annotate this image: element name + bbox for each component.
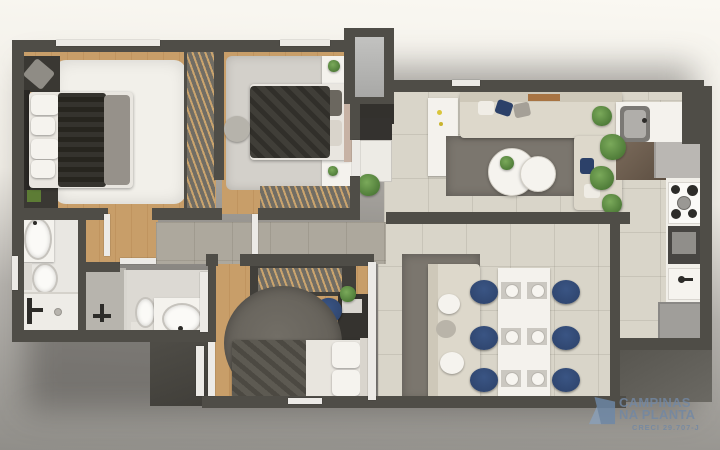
cooktop-burner	[688, 209, 697, 218]
wall-left	[12, 40, 24, 340]
master-throw-blanket	[104, 95, 130, 185]
watermark-line2: NA PLANTA	[619, 409, 700, 421]
master-closet-hangers	[184, 48, 215, 210]
dining-chair	[470, 280, 498, 304]
shower-drain	[54, 308, 62, 316]
faucet-arm	[684, 278, 693, 281]
door-leaf-master	[104, 214, 110, 256]
shower-fixture	[100, 304, 104, 322]
wall-top-living	[388, 80, 704, 92]
bedroom2-duvet	[250, 86, 330, 158]
door-leaf-bathroom2	[120, 258, 156, 264]
cooktop-burner	[671, 185, 680, 194]
kitchen-sink-top-basin	[624, 110, 646, 138]
window-master	[56, 40, 160, 46]
plate	[505, 330, 519, 344]
master-pillow	[31, 117, 55, 135]
cooktop-knob	[677, 196, 691, 210]
bedroom3-pillow	[332, 342, 360, 368]
plate	[505, 372, 519, 386]
coffee-table-small	[520, 156, 556, 192]
floor-plan-render: CAMPINAS NA PLANTA CRECI 29.707-J	[0, 0, 720, 450]
bedroom3-pillow	[332, 370, 360, 396]
nightstand-book	[27, 190, 41, 202]
wall-dining-kitchen	[610, 222, 620, 408]
dining-chair	[552, 326, 580, 350]
plant	[340, 286, 356, 302]
master-duvet	[58, 93, 106, 187]
plant	[602, 194, 622, 214]
sofa-pillow-white	[478, 101, 494, 115]
plant	[328, 60, 340, 72]
bedroom3-sheet	[306, 340, 332, 398]
bench-pillow	[440, 352, 464, 374]
kitchen-sink-lower	[668, 268, 702, 300]
shower-fixture-arm	[27, 308, 43, 312]
plate	[531, 372, 545, 386]
door-leaf-bedroom2-side	[352, 140, 360, 176]
door-leaf-bedroom2	[252, 214, 258, 254]
dining-chair	[470, 368, 498, 392]
cooktop-burner	[687, 185, 698, 196]
bench-pillow	[438, 294, 460, 314]
plant	[590, 166, 614, 190]
console-decor	[439, 122, 443, 126]
bench-pillow-gray	[436, 320, 456, 338]
bedroom3-duvet	[232, 340, 308, 398]
door-bathroom2-right	[200, 272, 208, 332]
wall-kitchen-bottom	[610, 338, 712, 350]
bedroom2-wardrobe-hangers	[260, 186, 354, 210]
dining-chair	[470, 326, 498, 350]
wall-bathroom2-top	[84, 262, 120, 272]
toilet-bowl	[32, 263, 58, 294]
wall-living-bottom	[386, 212, 630, 224]
plate	[531, 330, 545, 344]
plant	[500, 156, 514, 170]
plant	[592, 106, 612, 126]
wall-bedroom3-top-a	[206, 254, 218, 266]
bedroom3-headboard	[360, 338, 368, 400]
plant	[358, 174, 380, 196]
campinas-na-planta-logo-icon	[588, 397, 616, 425]
plate	[531, 284, 545, 298]
wall-bottom-main	[202, 396, 626, 408]
wall-bedrooms-bottom-a	[12, 208, 108, 220]
entry-door-glass	[355, 37, 384, 97]
master-pillow	[31, 160, 55, 178]
watermark-creci: CRECI 29.707-J	[619, 422, 700, 434]
kitchen-cabinet-gray	[654, 142, 704, 178]
window-left-wall	[12, 256, 18, 290]
dining-chair	[552, 368, 580, 392]
bedroom2-pouf	[224, 116, 250, 142]
window-living	[452, 80, 480, 86]
master-pillow	[31, 139, 59, 159]
bathroom1-sink	[24, 218, 52, 260]
cooktop-burner	[671, 209, 681, 219]
dining-chair	[552, 280, 580, 304]
faucet	[642, 118, 647, 123]
plant	[600, 134, 626, 160]
wall-bedroom3-left	[208, 254, 216, 342]
window-bedroom2	[280, 40, 330, 46]
shower-fixture-arm	[93, 314, 111, 318]
wall-bedrooms-bottom-b	[152, 208, 222, 220]
corner-wall-mass	[618, 346, 712, 402]
wall-bedroom3-top-b	[240, 254, 374, 266]
wall-kitchen-column	[682, 90, 702, 144]
hallway-wood-floor	[84, 214, 158, 264]
watermark: CAMPINAS NA PLANTA CRECI 29.707-J	[588, 397, 716, 434]
wood-decor-shelf	[528, 94, 560, 101]
door-leaf-bedroom3	[196, 346, 204, 396]
plate	[505, 284, 519, 298]
wall-master-bedroom2-divider	[214, 40, 224, 180]
console-decor	[437, 110, 442, 115]
plant	[328, 166, 338, 176]
window-bedroom3-bottom	[288, 398, 322, 404]
sliding-partition-bedroom3	[368, 262, 376, 400]
oven-window	[672, 232, 696, 254]
toilet-bowl	[135, 297, 156, 328]
faucet	[33, 221, 37, 225]
wall-bedroom2-right-b	[350, 176, 360, 212]
master-pillow	[31, 95, 59, 115]
wall-bathrooms-divider	[78, 214, 86, 330]
wall-bath-bottom	[12, 330, 212, 342]
wall-bedrooms-bottom-c	[258, 208, 360, 220]
window-bedroom3-left	[208, 342, 215, 396]
